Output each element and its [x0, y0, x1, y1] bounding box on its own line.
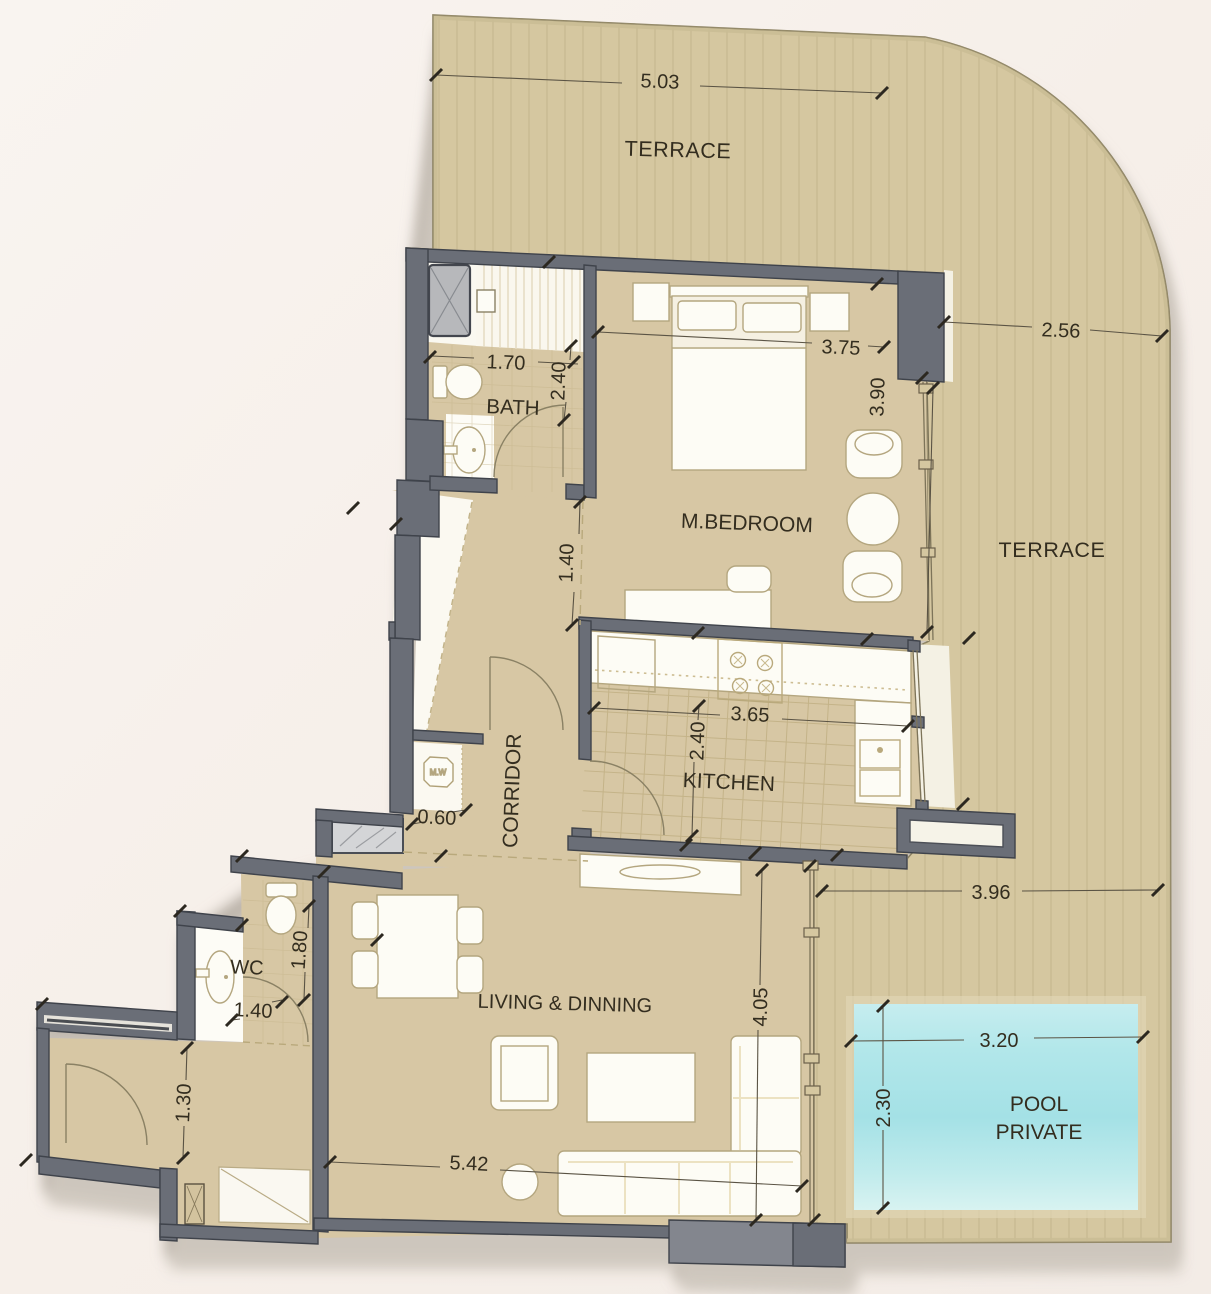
svg-text:TERRACE: TERRACE: [624, 137, 732, 164]
svg-text:BATH: BATH: [486, 395, 540, 420]
svg-text:2.56: 2.56: [1041, 319, 1081, 343]
svg-text:3.90: 3.90: [866, 377, 889, 417]
svg-text:2.40: 2.40: [547, 361, 570, 401]
svg-text:KITCHEN: KITCHEN: [682, 769, 775, 796]
svg-text:M.BEDROOM: M.BEDROOM: [681, 510, 814, 538]
svg-text:1.40: 1.40: [555, 543, 578, 583]
svg-text:5.42: 5.42: [449, 1152, 489, 1176]
svg-text:1.80: 1.80: [288, 930, 313, 970]
svg-text:POOL: POOL: [1010, 1093, 1068, 1116]
svg-text:PRIVATE: PRIVATE: [996, 1121, 1083, 1144]
svg-text:4.05: 4.05: [750, 987, 773, 1026]
svg-text:1.40: 1.40: [233, 999, 273, 1023]
svg-text:1.70: 1.70: [486, 351, 526, 375]
svg-text:3.96: 3.96: [972, 882, 1011, 904]
svg-text:LIVING & DINNING: LIVING & DINNING: [477, 991, 652, 1018]
svg-text:TERRACE: TERRACE: [999, 538, 1106, 562]
svg-text:1.30: 1.30: [172, 1083, 196, 1123]
svg-text:0.60: 0.60: [417, 806, 457, 830]
svg-text:3.75: 3.75: [821, 336, 861, 360]
svg-text:M.W: M.W: [430, 768, 447, 777]
svg-text:5.03: 5.03: [640, 70, 680, 94]
svg-text:3.65: 3.65: [730, 703, 770, 727]
svg-text:WC: WC: [230, 956, 264, 979]
svg-text:CORRIDOR: CORRIDOR: [499, 733, 526, 848]
svg-text:3.20: 3.20: [980, 1030, 1019, 1052]
svg-text:2.30: 2.30: [873, 1089, 895, 1128]
svg-text:2.40: 2.40: [686, 721, 709, 761]
